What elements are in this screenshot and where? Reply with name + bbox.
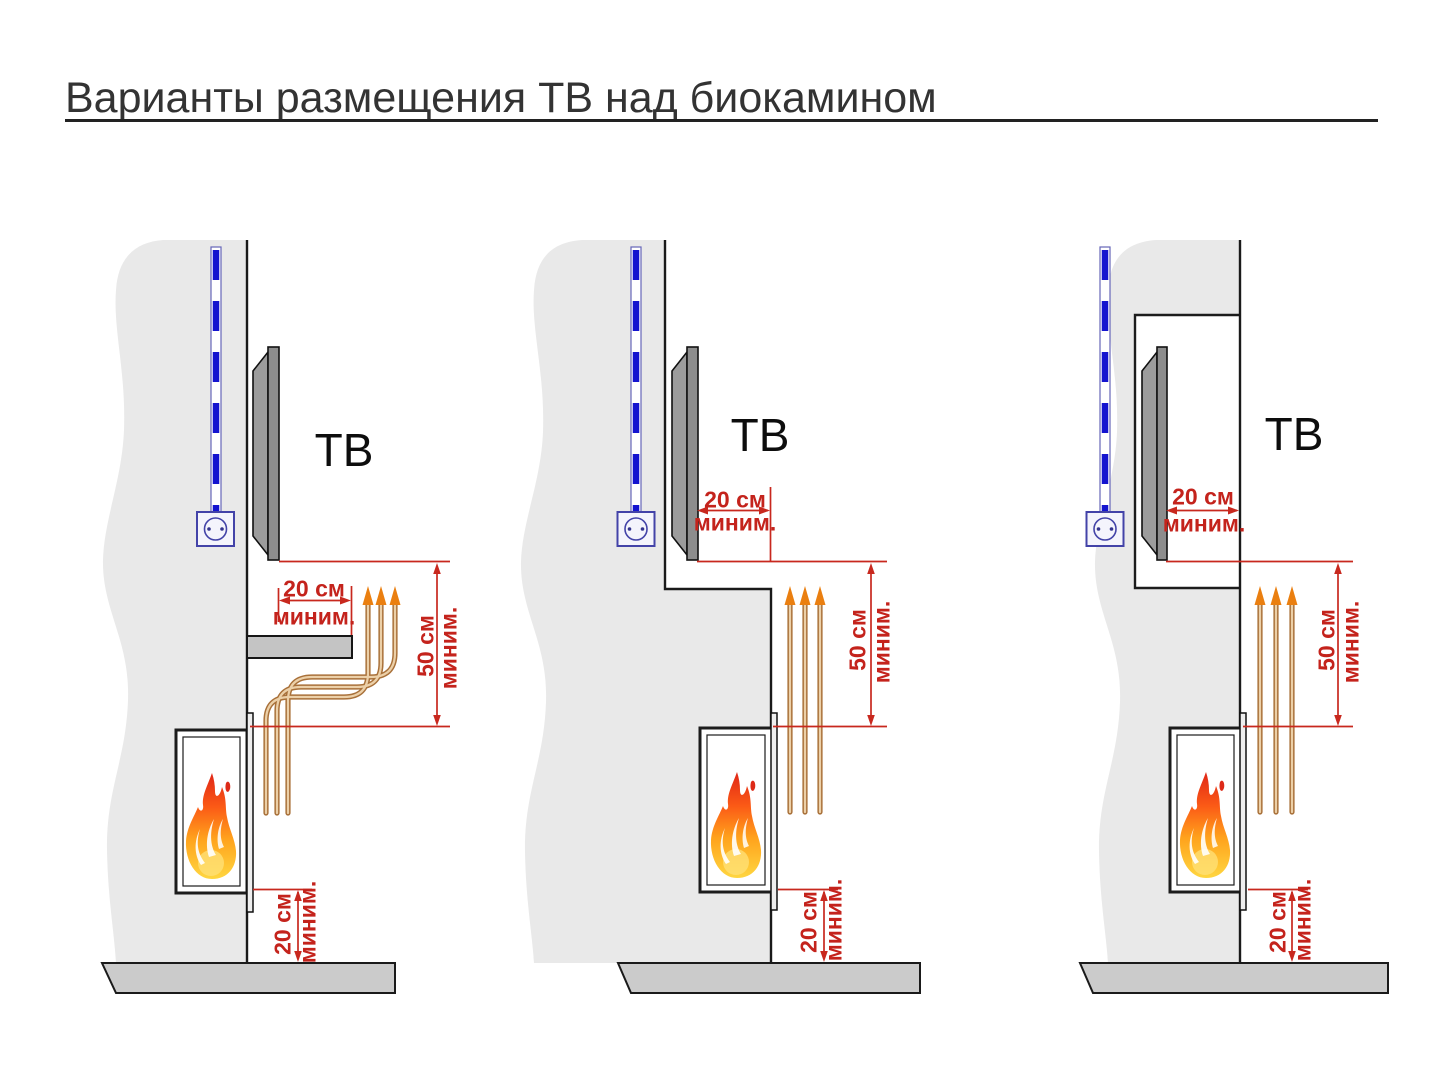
dim-20cm-qualifier: миним.: [273, 606, 356, 629]
fireplace-glass: [771, 713, 777, 910]
dim-50cm-value: 50 см: [415, 615, 438, 677]
dim-floor-20cm-qualifier: миним.: [1292, 879, 1315, 962]
dim-floor-20cm-value: 20 см: [798, 891, 821, 953]
tv-label: ТВ: [731, 412, 790, 458]
dim-20cm-value: 20 см: [283, 578, 345, 601]
protective-shelf: [247, 636, 352, 658]
tv-label: ТВ: [1265, 411, 1324, 457]
dim-50cm-qualifier: миним.: [1340, 601, 1363, 684]
fireplace-glass: [1240, 713, 1246, 910]
dim-floor-20cm-value: 20 см: [1267, 891, 1290, 953]
floor: [618, 963, 920, 993]
dim-20cm-qualifier: миним.: [1163, 513, 1246, 536]
dim-20cm-value: 20 см: [704, 489, 766, 512]
tv-panel: [268, 347, 279, 560]
bio-fireplace-tv-placement-diagram: Варианты размещения ТВ над биокамином: [0, 0, 1440, 1080]
tv-mount: [672, 352, 687, 555]
dim-floor-20cm-qualifier: миним.: [823, 879, 846, 962]
dim-floor-20cm-value: 20 см: [272, 893, 295, 955]
diagram-canvas: [0, 0, 1440, 1080]
fireplace-glass: [247, 713, 253, 912]
floor: [1080, 963, 1388, 993]
tv-label: ТВ: [315, 427, 374, 473]
dim-floor-20cm-qualifier: миним.: [297, 881, 320, 964]
dim-50cm-value: 50 см: [1316, 609, 1339, 671]
dim-50cm-qualifier: миним.: [871, 601, 894, 684]
dim-50cm-value: 50 см: [847, 609, 870, 671]
dim-20cm-qualifier: миним.: [694, 512, 777, 535]
dim-20cm-value: 20 см: [1172, 486, 1234, 509]
floor: [102, 963, 395, 993]
heat-flow-arrows: [785, 586, 826, 812]
tv-mount: [253, 352, 268, 555]
dim-50cm-qualifier: миним.: [438, 607, 461, 690]
tv-mount: [1142, 352, 1157, 555]
heat-flow-arrows: [1255, 586, 1298, 812]
